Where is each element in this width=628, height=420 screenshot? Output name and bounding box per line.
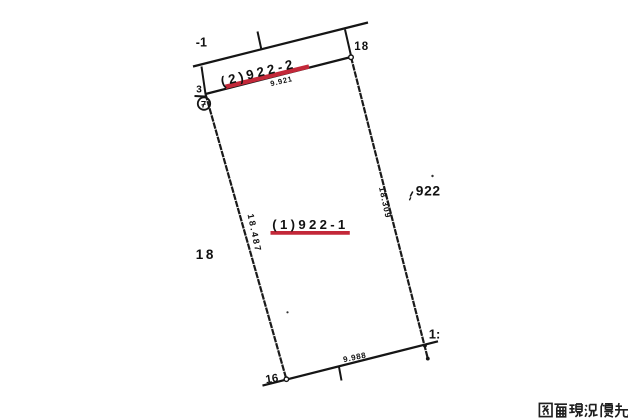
svg-text:922: 922 [416, 183, 441, 198]
svg-text:3: 3 [196, 84, 202, 95]
svg-text:1:: 1: [429, 327, 441, 342]
svg-text:(1)922-1: (1)922-1 [272, 217, 348, 232]
svg-text:18: 18 [354, 41, 369, 53]
svg-text:16: 16 [265, 373, 279, 387]
svg-text:18: 18 [196, 247, 216, 262]
svg-text:-1: -1 [196, 35, 207, 49]
